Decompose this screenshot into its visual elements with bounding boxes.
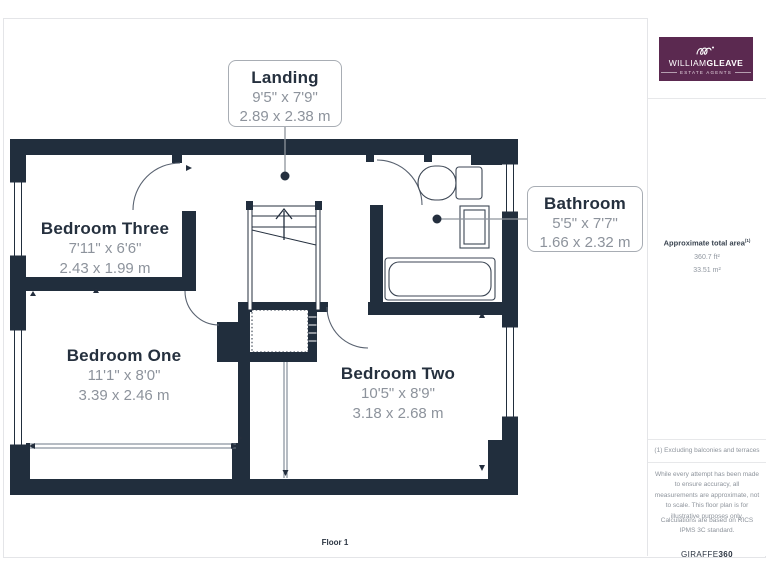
total-area-m: 33.51 m² <box>648 267 766 274</box>
bedroom-one-door-arc <box>185 291 219 325</box>
sidebar-divider <box>648 98 766 99</box>
sink-inner <box>464 210 485 244</box>
staircase <box>246 201 322 310</box>
bedroom-three-door-arc <box>133 163 180 210</box>
total-area-label: Approximate total area(1) <box>648 238 766 248</box>
landing-dot <box>281 172 290 181</box>
balconies-footnote: (1) Excluding balconies and terraces <box>648 439 766 462</box>
room-dim-metric: 2.43 x 1.99 m <box>30 259 180 279</box>
room-dim-imperial: 10'5" x 8'9" <box>323 384 473 404</box>
accuracy-disclaimer: While every attempt has been made to ens… <box>654 470 760 522</box>
stairs-up-arrow-icon <box>276 209 292 240</box>
room-label-bedroom-one: Bedroom One 11'1" x 8'0" 3.39 x 2.46 m <box>49 345 199 406</box>
brand-name: WILLIAMGLEAVE <box>669 58 744 68</box>
rics-standard-note: Calculations are based on RICS IPMS 3C s… <box>654 516 760 537</box>
area-footnote-marker: (1) <box>745 238 751 243</box>
callout-dim-imperial: 5'5" x 7'7" <box>528 214 642 233</box>
floor-label: Floor 1 <box>300 538 370 547</box>
bedroom-two-door-arc <box>327 307 368 348</box>
bathtub-inner <box>389 262 491 296</box>
room-dim-imperial: 11'1" x 8'0" <box>49 366 199 386</box>
room-dim-metric: 3.18 x 2.68 m <box>323 404 473 424</box>
brand-tagline: ESTATE AGENTS <box>661 70 751 75</box>
toilet-bowl <box>418 166 456 200</box>
cupboard <box>252 310 317 352</box>
giraffe360-credit: GIRAFFE360 <box>648 550 766 559</box>
bathroom-door-arc <box>377 160 422 205</box>
callout-dim-metric: 1.66 x 2.32 m <box>528 233 642 252</box>
info-sidebar: WILLIAMGLEAVE ESTATE AGENTS Approximate … <box>647 18 766 556</box>
bathroom-dot <box>433 215 442 224</box>
callout-title: Landing <box>229 68 341 88</box>
bathroom-fixtures <box>385 166 495 300</box>
tagline-rule <box>735 72 751 73</box>
room-dim-metric: 3.39 x 2.46 m <box>49 386 199 406</box>
sidebar-divider <box>648 462 766 463</box>
monogram-icon <box>693 44 719 57</box>
room-dim-imperial: 7'11" x 6'6" <box>30 239 180 259</box>
callout-dim-imperial: 9'5" x 7'9" <box>229 88 341 107</box>
bathroom-callout: Bathroom 5'5" x 7'7" 1.66 x 2.32 m <box>527 186 643 252</box>
room-name: Bedroom Two <box>323 363 473 384</box>
landing-callout: Landing 9'5" x 7'9" 2.89 x 2.38 m <box>228 60 342 127</box>
total-area-block: Approximate total area(1) 360.7 ft² 33.5… <box>648 238 766 274</box>
callout-title: Bathroom <box>528 194 642 214</box>
william-gleave-logo: WILLIAMGLEAVE ESTATE AGENTS <box>659 37 753 81</box>
tagline-rule <box>661 72 677 73</box>
room-label-bedroom-three: Bedroom Three 7'11" x 6'6" 2.43 x 1.99 m <box>30 218 180 279</box>
toilet-tank <box>456 167 482 199</box>
room-name: Bedroom Three <box>30 218 180 239</box>
room-name: Bedroom One <box>49 345 199 366</box>
callout-dim-metric: 2.89 x 2.38 m <box>229 107 341 126</box>
room-label-bedroom-two: Bedroom Two 10'5" x 8'9" 3.18 x 2.68 m <box>323 363 473 424</box>
total-area-ft: 360.7 ft² <box>648 254 766 261</box>
